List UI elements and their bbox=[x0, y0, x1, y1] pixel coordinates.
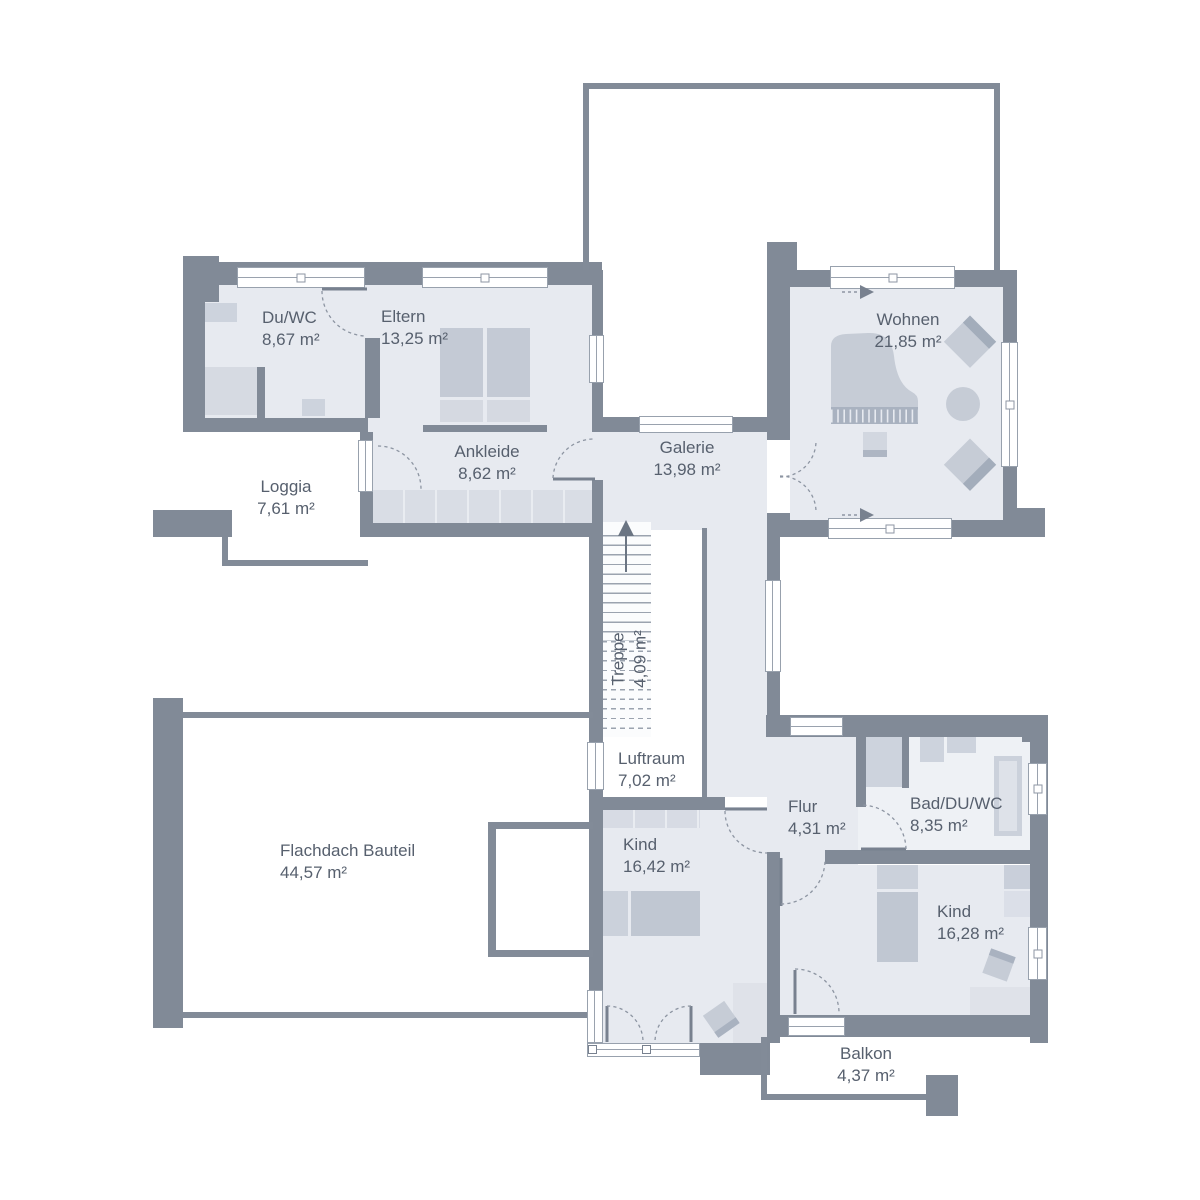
shower-partition-duwc bbox=[257, 367, 265, 418]
wall-galerie-wohnen-south bbox=[767, 513, 790, 537]
room-name: Du/WC bbox=[262, 307, 320, 329]
room-area: 4,31 m² bbox=[788, 818, 846, 840]
outline-bay-left bbox=[488, 822, 496, 957]
room-label-treppe: Treppe 4,09 m² bbox=[608, 630, 653, 688]
window-wohnen-north bbox=[830, 266, 955, 289]
window-post-kind-1-a bbox=[588, 1045, 597, 1054]
room-label-bad: Bad/DU/WC 8,35 m² bbox=[910, 793, 1003, 838]
outline-bay-top bbox=[488, 822, 593, 829]
room-label-eltern: Eltern 13,25 m² bbox=[381, 306, 448, 351]
room-label-wohnen: Wohnen 21,85 m² bbox=[874, 309, 941, 354]
room-name: Eltern bbox=[381, 306, 448, 328]
shower-duwc bbox=[203, 367, 257, 415]
wall-pillar-balkon bbox=[926, 1075, 958, 1116]
shower-bad bbox=[862, 735, 902, 787]
outline-flachdach-bottom bbox=[183, 1012, 593, 1018]
bed-eltern-pillow-right bbox=[487, 400, 530, 422]
window-luftraum-west bbox=[587, 742, 604, 790]
wall-galerie-wohnen-north bbox=[767, 287, 790, 440]
bed-kind-2-pillow bbox=[877, 865, 918, 889]
room-label-balkon: Balkon 4,37 m² bbox=[837, 1043, 895, 1088]
room-name: Galerie bbox=[653, 437, 720, 459]
room-label-flachdach: Flachdach Bauteil 44,57 m² bbox=[280, 840, 415, 885]
wall-west-duwc bbox=[183, 279, 205, 432]
window-kind-2-east bbox=[1028, 927, 1047, 980]
wall-west-bad bbox=[856, 733, 866, 807]
window-eltern-north bbox=[422, 267, 548, 288]
window-corridor-east bbox=[765, 580, 781, 672]
window-kind-1-west bbox=[587, 990, 603, 1043]
wall-corner-kind-1-se bbox=[700, 1043, 770, 1075]
sink-duwc bbox=[205, 303, 237, 322]
side-table-wohnen bbox=[863, 432, 887, 450]
room-label-duwc: Du/WC 8,67 m² bbox=[262, 307, 320, 352]
parapet-loggia-south bbox=[222, 560, 368, 566]
desk-kind-1 bbox=[733, 983, 768, 1043]
room-name: Kind bbox=[623, 834, 690, 856]
roof-outline-top bbox=[583, 83, 1000, 89]
shower-partition-bad bbox=[902, 733, 909, 788]
outline-bay-bottom bbox=[488, 950, 593, 957]
room-floor-corridor bbox=[707, 530, 767, 797]
room-area: 7,02 m² bbox=[618, 770, 685, 792]
room-name: Ankleide bbox=[454, 441, 519, 463]
room-name: Treppe bbox=[608, 630, 630, 688]
parapet-balkon-west bbox=[761, 1037, 767, 1100]
wardrobe-kind-2-top bbox=[1004, 865, 1030, 889]
wall-divider-eltern-ankleide bbox=[423, 425, 547, 432]
wardrobe-ankleide bbox=[373, 490, 597, 523]
parapet-balkon-south bbox=[761, 1094, 935, 1100]
bed-kind-2-mattress bbox=[877, 892, 918, 962]
wall-south-bad bbox=[825, 850, 1030, 864]
room-area: 16,42 m² bbox=[623, 856, 690, 878]
roof-outline-right bbox=[994, 83, 1000, 270]
floor-plan: Du/WC 8,67 m² Eltern 13,25 m² Ankleide 8… bbox=[0, 0, 1200, 1200]
room-area: 4,37 m² bbox=[837, 1065, 895, 1087]
room-area: 44,57 m² bbox=[280, 862, 415, 884]
outline-flachdach-top bbox=[183, 712, 593, 718]
wall-stub-wohnen-nw bbox=[767, 242, 797, 287]
room-name: Flachdach Bauteil bbox=[280, 840, 415, 862]
wall-south-duwc bbox=[183, 418, 368, 432]
room-label-luftraum: Luftraum 7,02 m² bbox=[618, 748, 685, 793]
window-door-balkon bbox=[788, 1017, 845, 1036]
side-table-wohnen-edge bbox=[863, 450, 887, 457]
room-area: 21,85 m² bbox=[874, 331, 941, 353]
room-area: 13,98 m² bbox=[653, 459, 720, 481]
room-name: Flur bbox=[788, 796, 846, 818]
sink-bad bbox=[947, 736, 976, 753]
room-area: 8,67 m² bbox=[262, 329, 320, 351]
shelf-kind-1 bbox=[603, 810, 700, 828]
room-name: Wohnen bbox=[874, 309, 941, 331]
room-label-ankleide: Ankleide 8,62 m² bbox=[454, 441, 519, 486]
wall-north-kind-1 bbox=[589, 797, 725, 810]
room-name: Bad/DU/WC bbox=[910, 793, 1003, 815]
window-flur-north bbox=[790, 717, 843, 736]
room-area: 4,09 m² bbox=[630, 630, 652, 688]
wall-stub-ankleide-south bbox=[592, 480, 603, 523]
wall-south-ankleide bbox=[360, 523, 603, 537]
bed-eltern-pillow-left bbox=[440, 400, 483, 422]
luftraum-railing bbox=[702, 528, 707, 797]
room-label-galerie: Galerie 13,98 m² bbox=[653, 437, 720, 482]
room-name: Kind bbox=[937, 901, 1004, 923]
toilet-duwc bbox=[302, 399, 325, 416]
room-name: Luftraum bbox=[618, 748, 685, 770]
room-label-flur: Flur 4,31 m² bbox=[788, 796, 846, 841]
wall-bar-flachdach bbox=[153, 698, 183, 1028]
room-area: 16,28 m² bbox=[937, 923, 1004, 945]
window-wohnen-east bbox=[1001, 342, 1018, 467]
room-label-kind-2: Kind 16,28 m² bbox=[937, 901, 1004, 946]
room-label-loggia: Loggia 7,61 m² bbox=[257, 476, 315, 521]
window-wohnen-south bbox=[828, 518, 952, 539]
stairs-treads-solid bbox=[602, 535, 651, 641]
window-duwc-north bbox=[237, 267, 365, 288]
window-post-kind-1-b bbox=[642, 1045, 651, 1054]
room-area: 13,25 m² bbox=[381, 328, 448, 350]
roof-outline-left bbox=[583, 83, 589, 270]
room-area: 7,61 m² bbox=[257, 498, 315, 520]
room-area: 8,35 m² bbox=[910, 815, 1003, 837]
window-door-loggia bbox=[358, 440, 373, 492]
window-bad-east bbox=[1028, 763, 1047, 815]
room-label-kind-1: Kind 16,42 m² bbox=[623, 834, 690, 879]
room-name: Balkon bbox=[837, 1043, 895, 1065]
bed-kind-1-pillow bbox=[601, 891, 628, 936]
bed-kind-1-mattress bbox=[631, 891, 700, 936]
window-galerie-north bbox=[639, 416, 733, 433]
wall-duwc-eltern bbox=[365, 338, 380, 418]
wall-pillar-loggia bbox=[153, 510, 232, 537]
wardrobe-kind-2-bottom bbox=[1004, 891, 1030, 917]
window-eltern-east bbox=[589, 335, 604, 383]
toilet-bad bbox=[920, 733, 944, 762]
room-area: 8,62 m² bbox=[454, 463, 519, 485]
bed-eltern-panel-right bbox=[487, 328, 530, 397]
room-name: Loggia bbox=[257, 476, 315, 498]
